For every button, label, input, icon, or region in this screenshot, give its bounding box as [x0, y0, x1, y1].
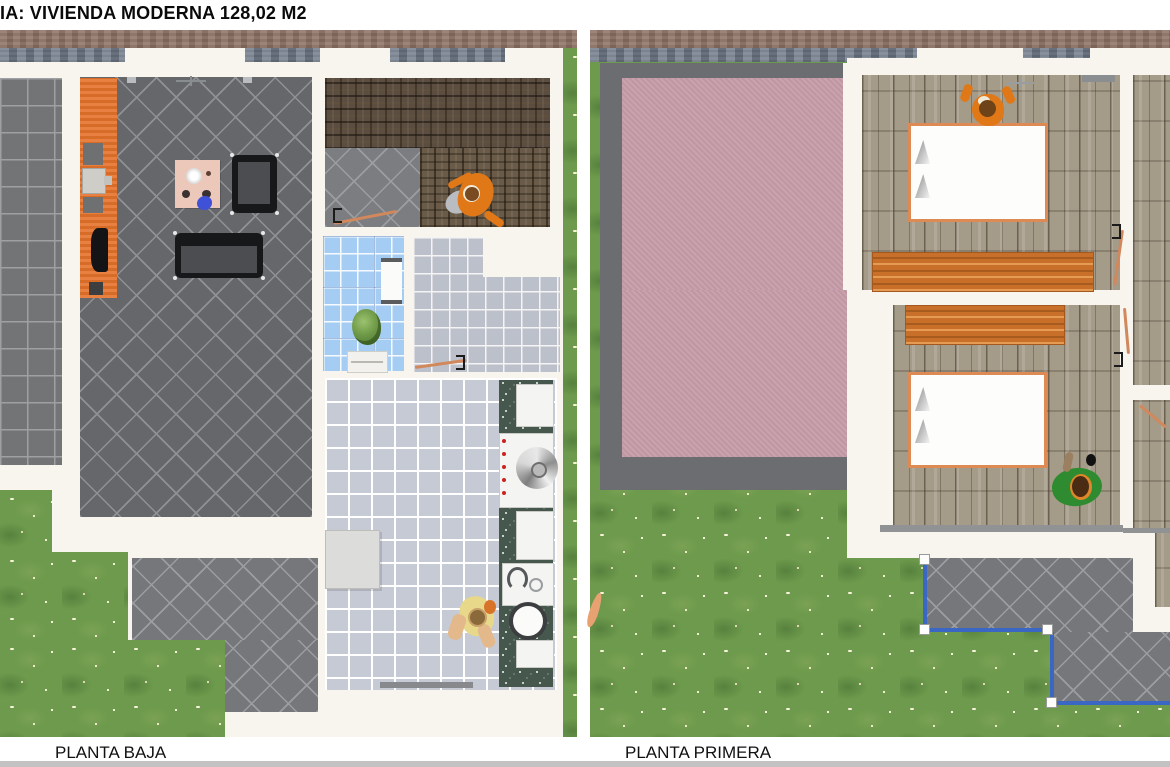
balcony-railing	[923, 558, 927, 632]
stove-knob	[502, 478, 506, 482]
window-edge	[0, 761, 1170, 767]
grass-strip	[563, 48, 577, 737]
floorplan-screenshot: IA: VIVIENDA MODERNA 128,02 M2	[0, 0, 1170, 767]
person-arm	[483, 209, 506, 228]
vase-blue	[197, 196, 212, 210]
pillow	[915, 387, 930, 411]
stove	[499, 433, 554, 508]
person-icon	[1048, 452, 1106, 514]
hallway-floor	[1155, 530, 1170, 607]
person-arm	[959, 83, 974, 103]
railing-post	[1046, 697, 1057, 708]
stove-knob	[502, 439, 506, 443]
bathroom-cabinet	[381, 258, 402, 304]
pot-icon	[509, 602, 547, 640]
leg	[261, 276, 265, 280]
fridge	[516, 384, 554, 427]
stove-knob	[502, 491, 506, 495]
sideboard-module	[83, 197, 103, 213]
fan-hub	[531, 462, 547, 478]
tv	[91, 228, 108, 272]
plan-planta-baja	[0, 30, 577, 737]
sideboard-sink-tab	[104, 176, 112, 185]
label-planta-primera: PLANTA PRIMERA	[625, 743, 771, 763]
label-planta-baja: PLANTA BAJA	[55, 743, 166, 763]
person-arm	[1001, 85, 1017, 105]
window-symbol	[190, 76, 192, 86]
hallway-wall	[1133, 385, 1170, 400]
rear-terrace	[222, 640, 318, 712]
window-mark	[243, 77, 252, 83]
person-hand	[1086, 454, 1096, 466]
door-stop-icon	[1114, 352, 1123, 367]
pavement-band	[245, 48, 320, 62]
table-item	[182, 190, 190, 198]
pillow	[915, 140, 930, 164]
pot-line	[351, 361, 383, 363]
sofa-seat	[181, 246, 257, 273]
armchair-seat	[238, 162, 270, 204]
hall-landing	[483, 237, 560, 277]
person-icon	[446, 588, 502, 652]
person-icon	[443, 163, 507, 233]
wardrobe	[905, 305, 1065, 345]
railing-post	[919, 554, 930, 565]
balcony-railing	[1050, 632, 1054, 705]
balcony	[923, 558, 1133, 632]
roof-edge	[600, 457, 883, 490]
roof-edge	[600, 63, 622, 490]
street-band	[590, 30, 1170, 48]
bed	[908, 372, 1047, 468]
armchair	[232, 155, 277, 213]
bedroom-divider-wall	[862, 290, 1127, 305]
pillow	[915, 174, 930, 198]
pillow	[915, 419, 930, 443]
door-stop-icon	[333, 208, 342, 223]
door-stop-icon	[456, 355, 465, 370]
leg	[275, 211, 279, 215]
sofa	[175, 233, 263, 278]
railing-post	[919, 624, 930, 635]
person-head	[465, 187, 479, 201]
terrace-tiles	[0, 78, 62, 465]
leg	[230, 211, 234, 215]
rear-terrace	[132, 558, 318, 640]
railing-post	[1042, 624, 1053, 635]
street-band	[0, 30, 577, 48]
balcony	[1050, 632, 1170, 705]
counter-module	[516, 511, 554, 560]
table-lamp	[186, 168, 202, 184]
wardrobe	[872, 252, 1094, 292]
person-head	[468, 608, 487, 627]
person-icon	[958, 82, 1016, 134]
hallway-floor	[1133, 75, 1170, 560]
doormat	[380, 682, 473, 688]
sideboard-module	[89, 282, 103, 295]
sink	[502, 563, 554, 606]
roof-terrace	[622, 78, 843, 290]
sideboard-sink	[82, 168, 106, 194]
person-head	[979, 100, 996, 117]
plant-pot	[347, 351, 388, 373]
plan-planta-primera	[590, 30, 1170, 737]
plant-icon	[352, 309, 381, 345]
roof-terrace	[622, 290, 883, 457]
garden-grass	[0, 640, 225, 737]
leg	[275, 153, 279, 157]
table-item	[206, 171, 211, 176]
window-symbol	[1020, 78, 1022, 87]
stove-knob	[502, 465, 506, 469]
pavement-band	[0, 48, 125, 62]
threshold	[880, 525, 1123, 532]
person-head	[1072, 476, 1089, 497]
leg	[261, 231, 265, 235]
leg	[230, 153, 234, 157]
balcony-railing	[923, 628, 1050, 632]
hallway-wall	[1120, 75, 1133, 530]
window-mark	[127, 77, 136, 83]
roof-edge	[600, 63, 843, 78]
page-title: IA: VIVIENDA MODERNA 128,02 M2	[0, 3, 307, 24]
sideboard-module	[83, 143, 103, 165]
counter-module	[516, 640, 554, 668]
bed	[908, 123, 1048, 222]
balcony-railing	[1050, 701, 1170, 705]
pavement-band	[390, 48, 505, 62]
leg	[173, 231, 177, 235]
threshold	[1123, 528, 1170, 533]
leg	[173, 276, 177, 280]
drain	[529, 578, 543, 592]
window-sill	[1082, 75, 1115, 82]
stove-knob	[502, 452, 506, 456]
faucet-icon	[507, 567, 528, 591]
kitchen-table	[325, 530, 380, 589]
door-stop-icon	[1112, 224, 1121, 239]
wall	[862, 290, 893, 530]
